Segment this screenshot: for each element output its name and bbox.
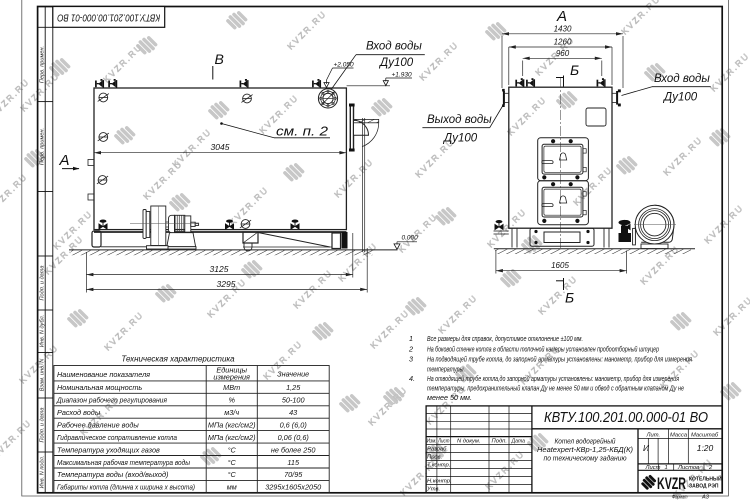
svg-text:Лист: Лист: [645, 465, 661, 471]
svg-text:А3: А3: [701, 495, 710, 500]
svg-text:МПа (кгс/см2): МПа (кгс/см2): [208, 420, 256, 429]
svg-text:0,6 (6,0): 0,6 (6,0): [280, 420, 307, 429]
svg-text:+1.930: +1.930: [392, 72, 412, 79]
svg-text:Ду100: Ду100: [442, 133, 478, 145]
svg-text:Габариты котла (длинна х ширин: Габариты котла (длинна х ширина х высота…: [57, 483, 195, 492]
svg-text:°С: °С: [228, 445, 237, 454]
svg-text:1: 1: [665, 465, 668, 471]
svg-text:На боковой стенке котла в обла: На боковой стенке котла в области топочн…: [427, 344, 659, 353]
svg-text:Значение: Значение: [277, 370, 309, 379]
svg-text:Изм.: Изм.: [427, 439, 437, 445]
svg-text:Инв. N дубл.: Инв. N дубл.: [40, 315, 46, 347]
svg-text:Температура уходящих газов: Температура уходящих газов: [57, 445, 160, 454]
svg-text:3: 3: [409, 355, 413, 364]
svg-text:КВТУ.100.201.00.000-01 ВО: КВТУ.100.201.00.000-01 ВО: [57, 11, 160, 22]
svg-text:Температура воды (вход/выход): Температура воды (вход/выход): [57, 470, 168, 479]
svg-text:температуры, предохранительный: температуры, предохранительный клапан Ду…: [427, 384, 684, 393]
svg-text:N докум.: N докум.: [457, 439, 480, 445]
svg-text:Взам. инв. N: Взам. инв. N: [40, 358, 46, 392]
svg-text:Б: Б: [570, 62, 579, 78]
svg-text:Дата: Дата: [511, 439, 526, 445]
svg-text:Утв.: Утв.: [426, 487, 440, 493]
svg-text:3295: 3295: [217, 279, 236, 289]
svg-text:Номинальная мощность: Номинальная мощность: [57, 383, 142, 392]
svg-text:Вход воды: Вход воды: [366, 41, 422, 53]
svg-text:МВт: МВт: [223, 383, 240, 392]
svg-text:Подп. и дата: Подп. и дата: [40, 407, 46, 442]
svg-text:2: 2: [408, 344, 413, 353]
svg-text:менее 50 мм.: менее 50 мм.: [427, 393, 472, 402]
svg-text:Вход воды: Вход воды: [654, 73, 710, 85]
svg-text:И: И: [643, 443, 650, 453]
svg-text:Формат: Формат: [672, 495, 688, 500]
svg-text:Гидравлическое сопративление к: Гидравлическое сопративление котла: [57, 433, 177, 442]
svg-text:Ду100: Ду100: [662, 92, 698, 104]
svg-text:4.: 4.: [409, 374, 415, 383]
svg-text:KVZR: KVZR: [657, 474, 686, 493]
svg-text:Наименование показателя: Наименование показателя: [57, 370, 150, 379]
svg-text:Все размеры для справок, допус: Все размеры для справок, допустимое откл…: [427, 334, 583, 343]
svg-text:Подп.: Подп.: [492, 439, 508, 445]
svg-text:Выход воды: Выход воды: [427, 114, 492, 126]
svg-text:1: 1: [409, 334, 413, 343]
svg-text:Пров.: Пров.: [427, 455, 442, 461]
svg-text:1260: 1260: [554, 38, 572, 47]
svg-text:температуры.: температуры.: [427, 364, 465, 373]
svg-text:1430: 1430: [554, 25, 572, 34]
svg-text:%: %: [228, 396, 235, 405]
svg-text:°С: °С: [228, 470, 237, 479]
svg-text:см. п. 2: см. п. 2: [276, 125, 328, 139]
svg-text:50-100: 50-100: [282, 396, 305, 405]
svg-text:1,25: 1,25: [286, 383, 301, 392]
svg-text:1:20: 1:20: [697, 443, 714, 453]
svg-text:3125: 3125: [210, 264, 229, 274]
svg-text:А: А: [556, 8, 567, 25]
svg-text:Лит.: Лит.: [646, 432, 661, 438]
svg-text:Перв. примен.: Перв. примен.: [40, 128, 46, 165]
svg-text:°С: °С: [228, 458, 237, 467]
svg-text:мм: мм: [227, 483, 237, 492]
svg-text:Ду100: Ду100: [378, 57, 414, 69]
svg-text:ЗАВОД РЭП: ЗАВОД РЭП: [689, 484, 719, 490]
svg-text:Диапазон рабочего регулировани: Диапазон рабочего регулирования: [56, 396, 167, 405]
svg-text:А: А: [59, 152, 70, 169]
svg-text:Максимальная рабочая температу: Максимальная рабочая температура воды: [57, 458, 191, 467]
svg-text:3045: 3045: [211, 142, 230, 152]
svg-text:Перв. примен.: Перв. примен.: [40, 46, 46, 83]
svg-text:м3/ч: м3/ч: [224, 408, 239, 417]
svg-text:Т.контр.: Т.контр.: [427, 463, 450, 469]
svg-text:Инв. N подл.: Инв. N подл.: [40, 456, 46, 489]
svg-text:Масштаб: Масштаб: [691, 432, 719, 438]
svg-text:На подводящей трубе котла, д: На подводящей трубе котла, до запорной а…: [427, 355, 692, 364]
svg-text:КОТЕЛЬНЫЙ: КОТЕЛЬНЫЙ: [689, 475, 722, 483]
svg-text:43: 43: [289, 408, 297, 417]
svg-text:В: В: [215, 51, 224, 67]
svg-text:Расход воды: Расход воды: [57, 408, 101, 417]
svg-text:КВТУ.100.201.00.000-01 ВО: КВТУ.100.201.00.000-01 ВО: [544, 410, 708, 426]
svg-text:по техническому заданию: по техническому заданию: [544, 454, 628, 463]
svg-text:Б: Б: [565, 290, 574, 306]
svg-text:Рабочее давление воды: Рабочее давление воды: [57, 420, 139, 429]
svg-text:Н.контр.: Н.контр.: [427, 479, 452, 485]
svg-text:960: 960: [556, 49, 570, 58]
svg-text:Лист: Лист: [437, 439, 449, 445]
svg-text:Масса: Масса: [670, 432, 688, 438]
svg-text:3295х1605х2050: 3295х1605х2050: [265, 483, 321, 492]
svg-text:Техническая характеристика: Техническая характеристика: [121, 355, 235, 364]
svg-text:Подп. и дата: Подп. и дата: [40, 265, 46, 300]
svg-text:Листов: Листов: [677, 465, 699, 471]
svg-text:0,06 (0,6): 0,06 (0,6): [278, 433, 309, 442]
svg-text:1605: 1605: [551, 261, 569, 270]
svg-text:На отводящей трубе котла,до за: На отводящей трубе котла,до запорной арм…: [427, 374, 679, 383]
svg-text:Разраб.: Разраб.: [427, 447, 448, 453]
svg-text:измерения: измерения: [213, 373, 250, 382]
svg-text:МПа (кгс/см2): МПа (кгс/см2): [208, 433, 256, 442]
svg-text:70/95: 70/95: [284, 470, 303, 479]
svg-text:0.000: 0.000: [402, 235, 419, 242]
svg-text:не более 250: не более 250: [271, 445, 316, 454]
svg-text:115: 115: [287, 458, 300, 467]
